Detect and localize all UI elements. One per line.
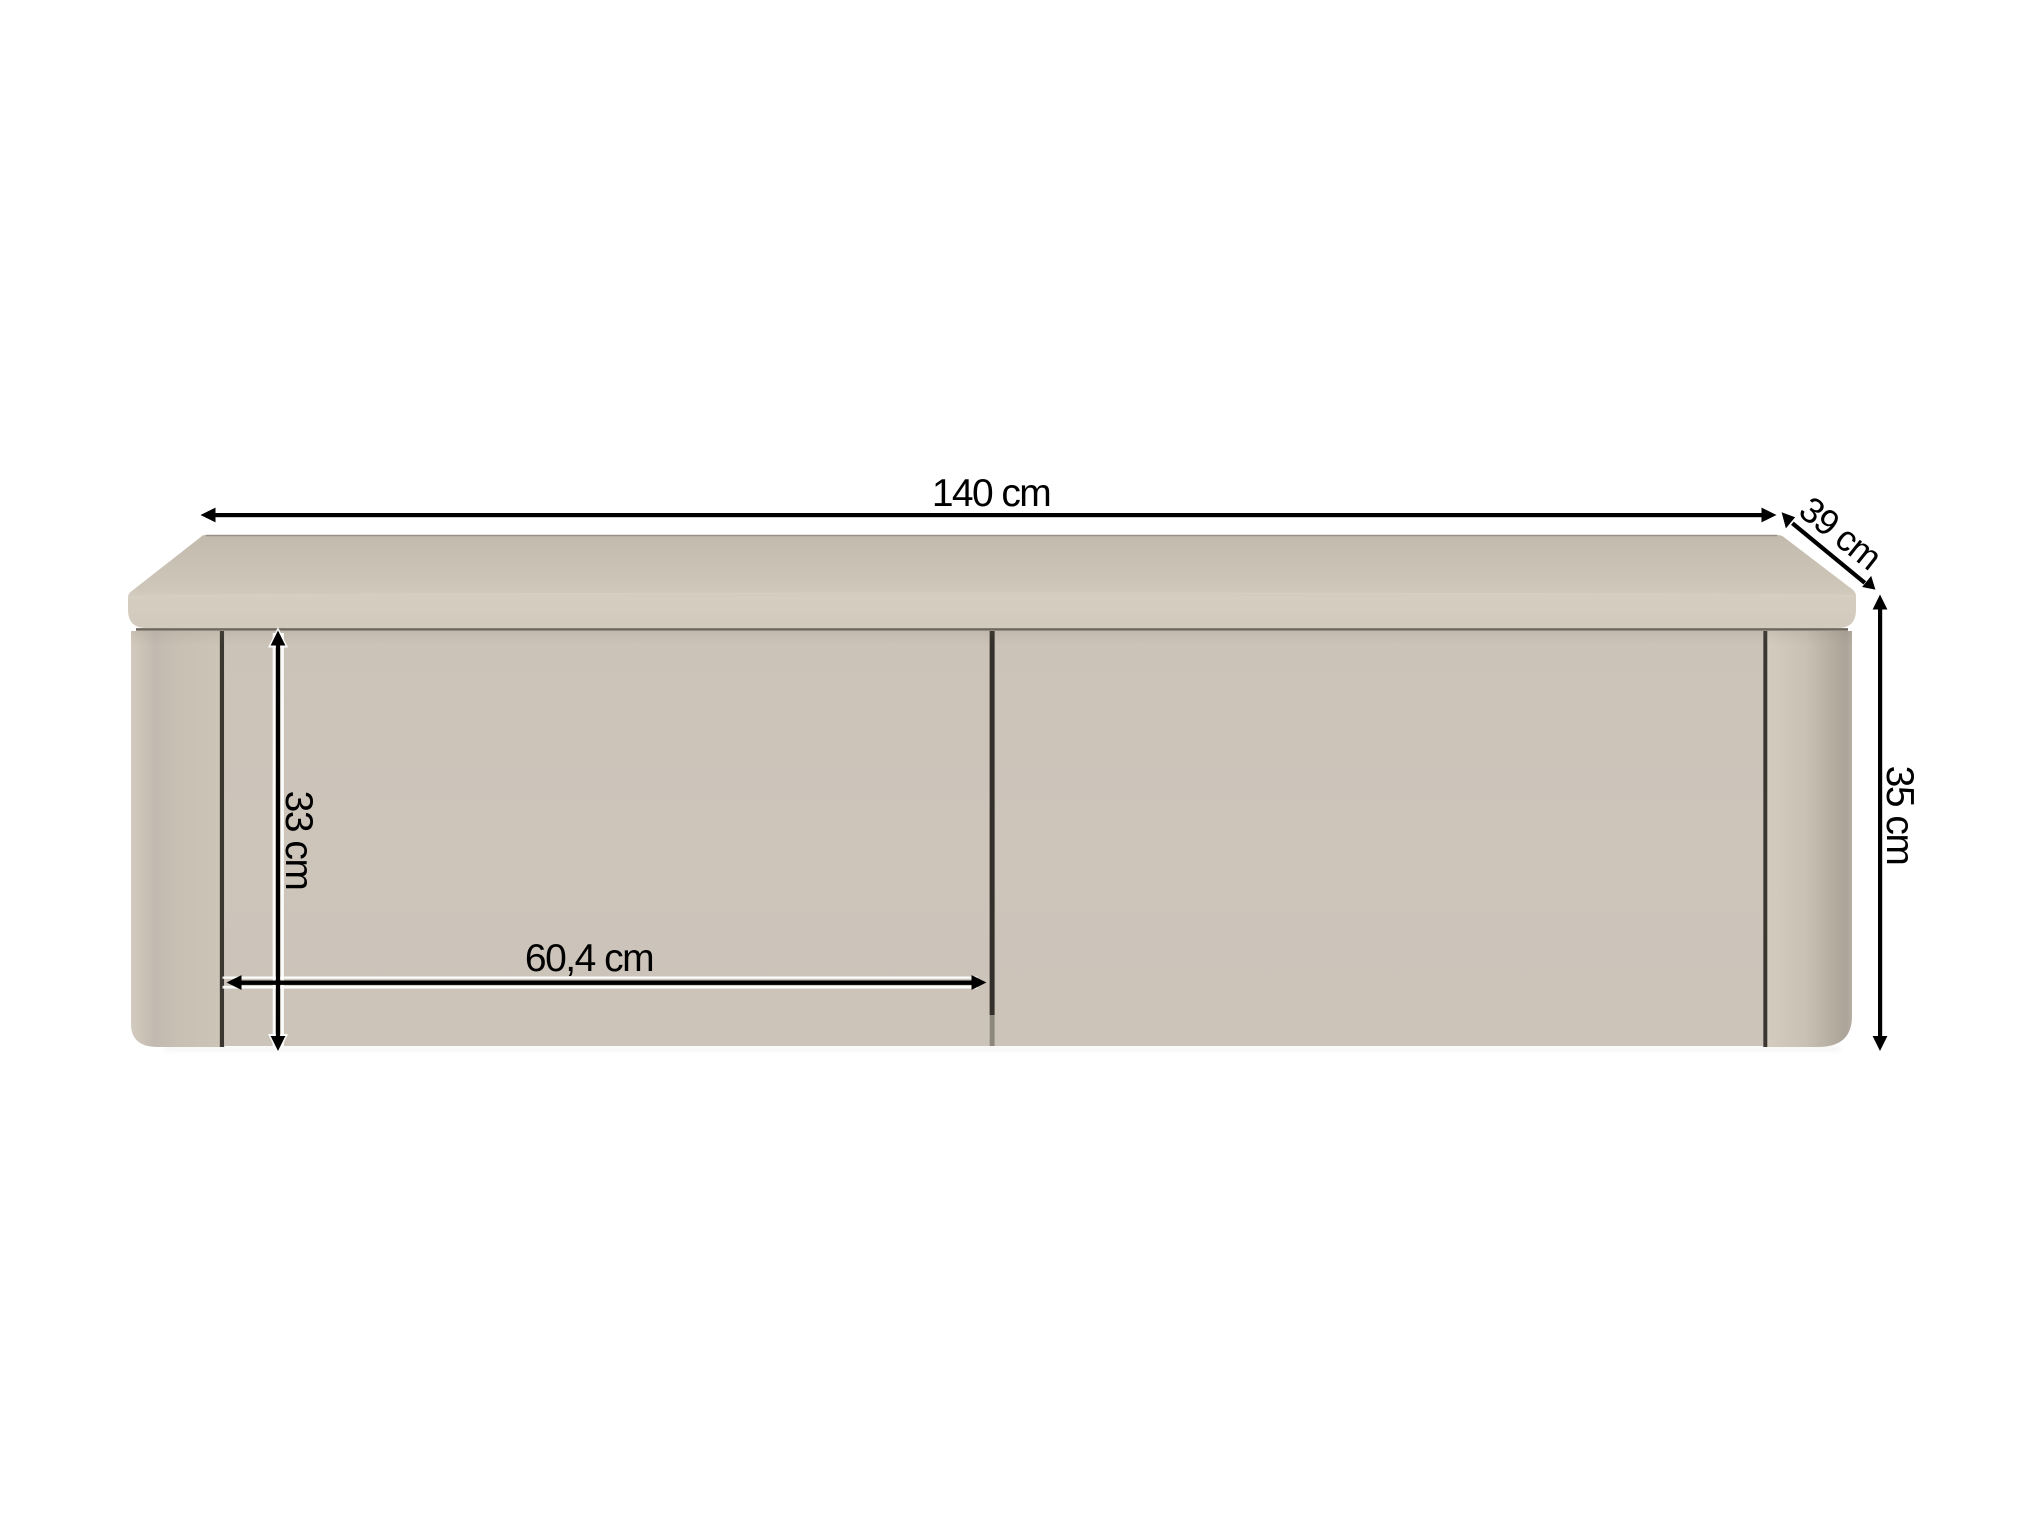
svg-text:35 cm: 35 cm (1878, 766, 1921, 865)
svg-text:140 cm: 140 cm (932, 472, 1050, 515)
svg-text:60,4 cm: 60,4 cm (525, 937, 653, 980)
svg-text:33 cm: 33 cm (277, 791, 320, 890)
